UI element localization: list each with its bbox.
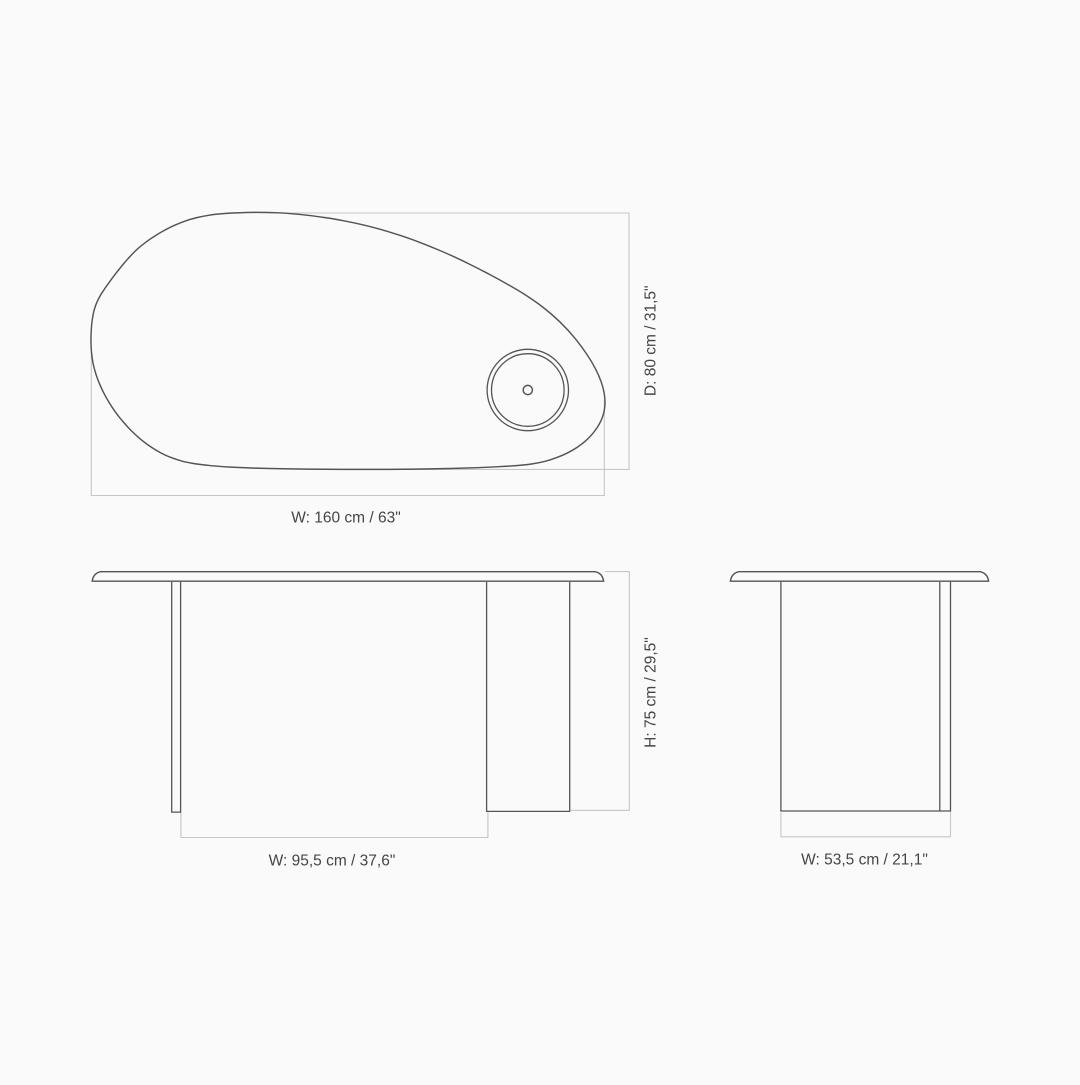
svg-text:W: 53,5 cm / 21,1": W: 53,5 cm / 21,1" (801, 852, 928, 869)
svg-text:D: 80 cm / 31,5": D: 80 cm / 31,5" (643, 285, 660, 396)
svg-text:H: 75 cm / 29,5": H: 75 cm / 29,5" (643, 637, 660, 748)
svg-text:W: 95,5 cm / 37,6": W: 95,5 cm / 37,6" (269, 852, 396, 869)
svg-text:W: 160 cm / 63": W: 160 cm / 63" (291, 509, 400, 526)
